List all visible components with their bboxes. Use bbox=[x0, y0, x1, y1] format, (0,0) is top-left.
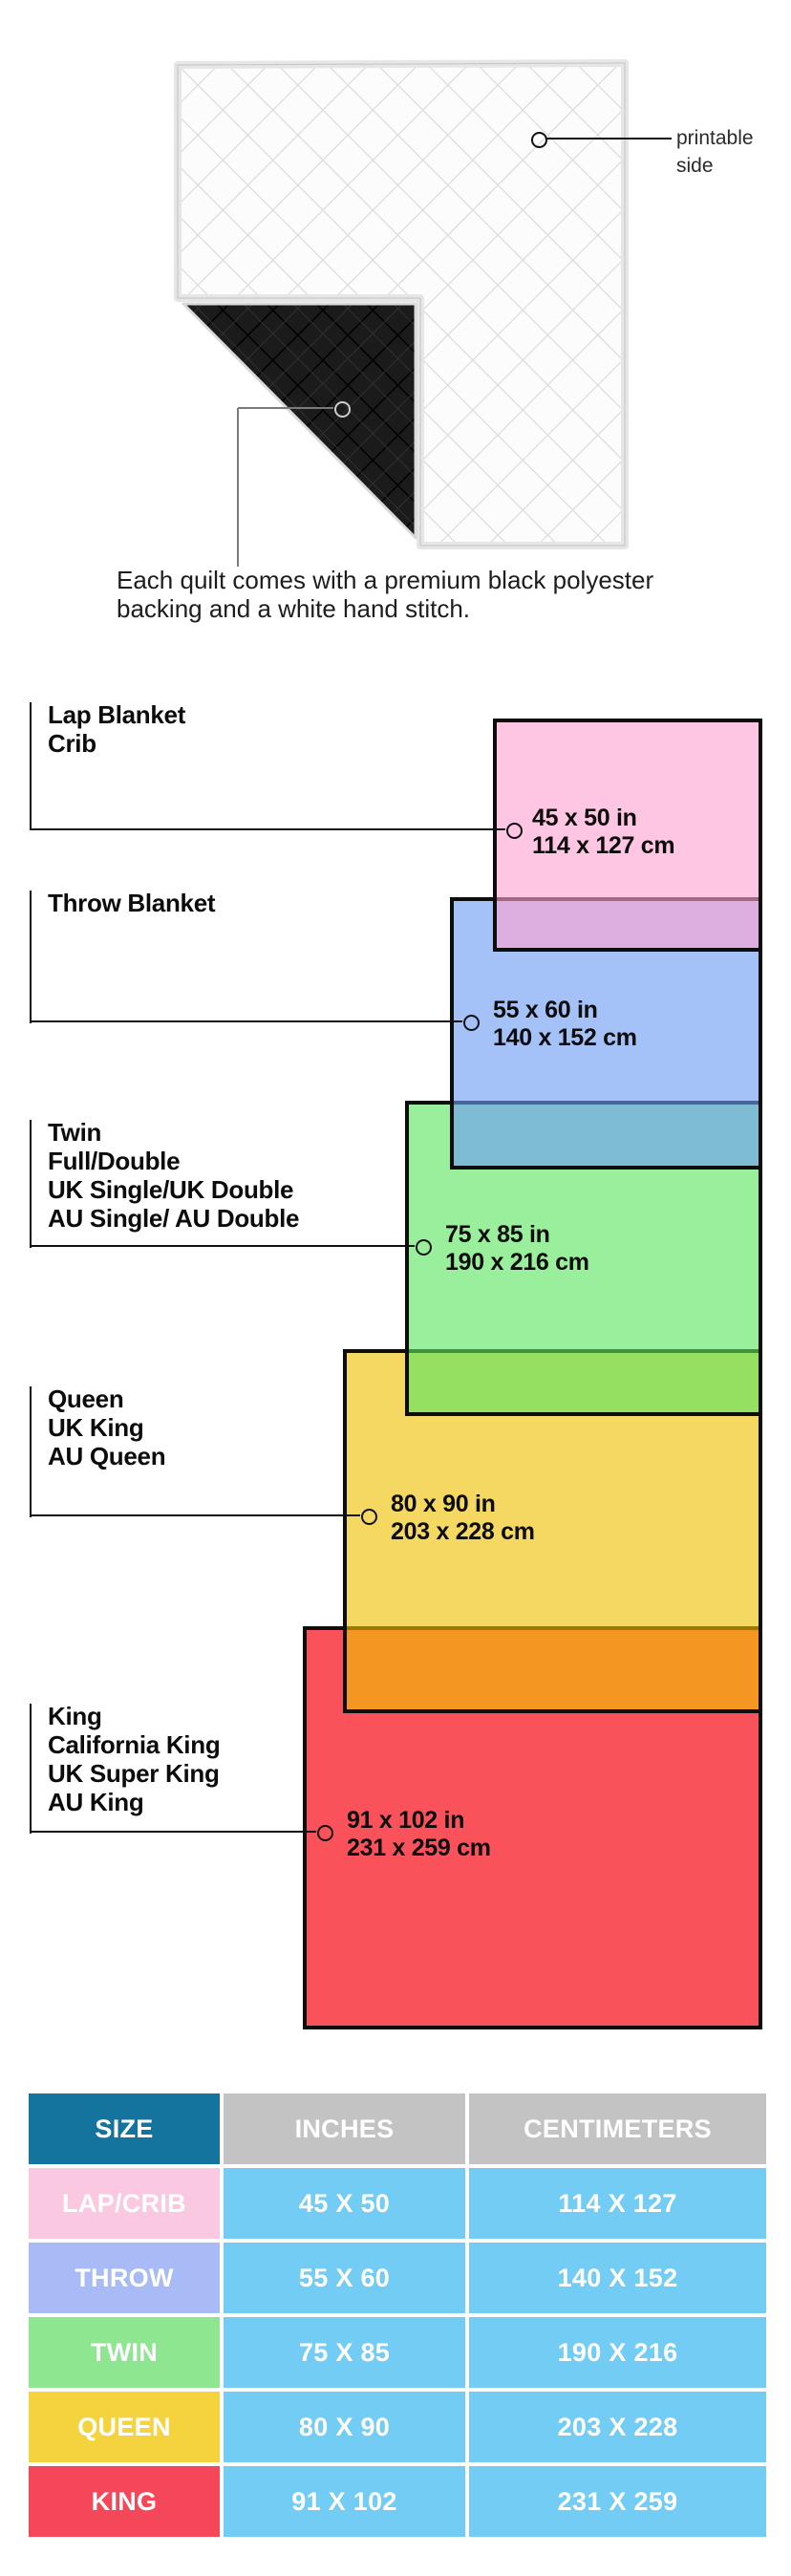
backing-callout-line-v bbox=[237, 408, 239, 567]
quilt-size-chart-page: printable side Each quilt comes with a p… bbox=[0, 0, 791, 2576]
size-label-line: AU King bbox=[48, 1788, 220, 1816]
table-cell-centimeters: 203 X 228 bbox=[469, 2392, 766, 2462]
size-inches: 80 x 90 in bbox=[391, 1491, 535, 1518]
king-callout-line-h bbox=[30, 1831, 316, 1833]
table-cell-centimeters: 114 X 127 bbox=[469, 2168, 766, 2239]
size-label-line: Throw Blanket bbox=[48, 889, 215, 917]
size-dimensions-twin: 75 x 85 in 190 x 216 cm bbox=[445, 1221, 589, 1277]
table-cell-size: KING bbox=[29, 2466, 220, 2537]
size-label-line: AU Queen bbox=[48, 1442, 165, 1470]
quilt-image bbox=[173, 59, 630, 550]
throw-callout-line-v bbox=[30, 891, 32, 1023]
twin-marker-icon bbox=[416, 1239, 432, 1256]
twin-callout-line-h bbox=[30, 1245, 415, 1247]
size-label-line: California King bbox=[48, 1730, 220, 1759]
size-inches: 45 x 50 in bbox=[532, 805, 674, 832]
size-label-line: AU Single/ AU Double bbox=[48, 1204, 299, 1233]
size-label-line: Full/Double bbox=[48, 1147, 299, 1175]
size-dimensions-lap-crib: 45 x 50 in 114 x 127 cm bbox=[532, 805, 674, 860]
table-cell-inches: 75 X 85 bbox=[224, 2317, 465, 2388]
size-inches: 55 x 60 in bbox=[493, 997, 637, 1024]
size-label-line: Lap Blanket bbox=[48, 700, 185, 729]
printable-side-marker-icon bbox=[531, 132, 547, 148]
queen-callout-line-v bbox=[30, 1386, 32, 1517]
table-cell-size: LAP/CRIB bbox=[29, 2168, 220, 2239]
size-inches: 91 x 102 in bbox=[347, 1807, 491, 1835]
table-cell-inches: 55 X 60 bbox=[224, 2243, 465, 2313]
throw-callout-line-h bbox=[30, 1020, 462, 1022]
twin-callout-line-v bbox=[30, 1120, 32, 1248]
size-inches: 75 x 85 in bbox=[445, 1221, 589, 1249]
size-dimensions-queen: 80 x 90 in 203 x 228 cm bbox=[391, 1491, 535, 1546]
table-cell-centimeters: 190 X 216 bbox=[469, 2317, 766, 2388]
size-label-lap-crib: Lap Blanket Crib bbox=[48, 700, 185, 758]
table-cell-inches: 45 X 50 bbox=[224, 2168, 465, 2239]
size-label-line: King bbox=[48, 1702, 220, 1730]
size-label-line: Queen bbox=[48, 1385, 165, 1413]
backing-callout-line-h bbox=[238, 407, 333, 409]
quilt-back-black-flap bbox=[183, 304, 416, 538]
size-centimeters: 114 x 127 cm bbox=[532, 832, 674, 860]
size-label-line: Twin bbox=[48, 1118, 299, 1147]
table-cell-inches: 80 X 90 bbox=[224, 2392, 465, 2462]
backing-marker-icon bbox=[334, 401, 351, 418]
lap-callout-line-h bbox=[30, 828, 505, 830]
size-label-queen: Queen UK King AU Queen bbox=[48, 1385, 165, 1470]
size-centimeters: 203 x 228 cm bbox=[391, 1518, 535, 1546]
table-cell-centimeters: 140 X 152 bbox=[469, 2243, 766, 2313]
size-label-line: UK Single/UK Double bbox=[48, 1175, 299, 1204]
queen-callout-line-h bbox=[30, 1514, 360, 1516]
size-label-line: UK Super King bbox=[48, 1759, 220, 1788]
printable-side-label: printable side bbox=[676, 124, 787, 180]
size-centimeters: 231 x 259 cm bbox=[347, 1835, 491, 1862]
size-label-king: King California King UK Super King AU Ki… bbox=[48, 1702, 220, 1816]
table-cell-centimeters: 231 X 259 bbox=[469, 2466, 766, 2537]
size-label-twin: Twin Full/Double UK Single/UK Double AU … bbox=[48, 1118, 299, 1233]
size-label-line: Crib bbox=[48, 729, 185, 758]
backing-note: Each quilt comes with a premium black po… bbox=[117, 566, 718, 623]
king-marker-icon bbox=[317, 1825, 333, 1841]
size-dimensions-throw: 55 x 60 in 140 x 152 cm bbox=[493, 997, 637, 1052]
lap-callout-line-v bbox=[30, 702, 32, 830]
size-label-throw: Throw Blanket bbox=[48, 889, 215, 917]
table-cell-size: TWIN bbox=[29, 2317, 220, 2388]
table-cell-size: THROW bbox=[29, 2243, 220, 2313]
table-cell-inches: 91 X 102 bbox=[224, 2466, 465, 2537]
size-centimeters: 190 x 216 cm bbox=[445, 1249, 589, 1277]
table-header-inches: INCHES bbox=[224, 2093, 465, 2164]
lap-marker-icon bbox=[506, 823, 523, 839]
throw-marker-icon bbox=[463, 1015, 480, 1031]
size-table: SIZE INCHES CENTIMETERS LAP/CRIB 45 X 50… bbox=[29, 2093, 772, 2537]
printable-side-callout-line bbox=[545, 138, 672, 140]
size-centimeters: 140 x 152 cm bbox=[493, 1024, 637, 1052]
queen-marker-icon bbox=[361, 1509, 377, 1525]
king-callout-line-v bbox=[30, 1704, 32, 1834]
table-header-size: SIZE bbox=[29, 2093, 220, 2164]
size-label-line: UK King bbox=[48, 1413, 165, 1442]
size-dimensions-king: 91 x 102 in 231 x 259 cm bbox=[347, 1807, 491, 1862]
table-cell-size: QUEEN bbox=[29, 2392, 220, 2462]
table-header-centimeters: CENTIMETERS bbox=[469, 2093, 766, 2164]
